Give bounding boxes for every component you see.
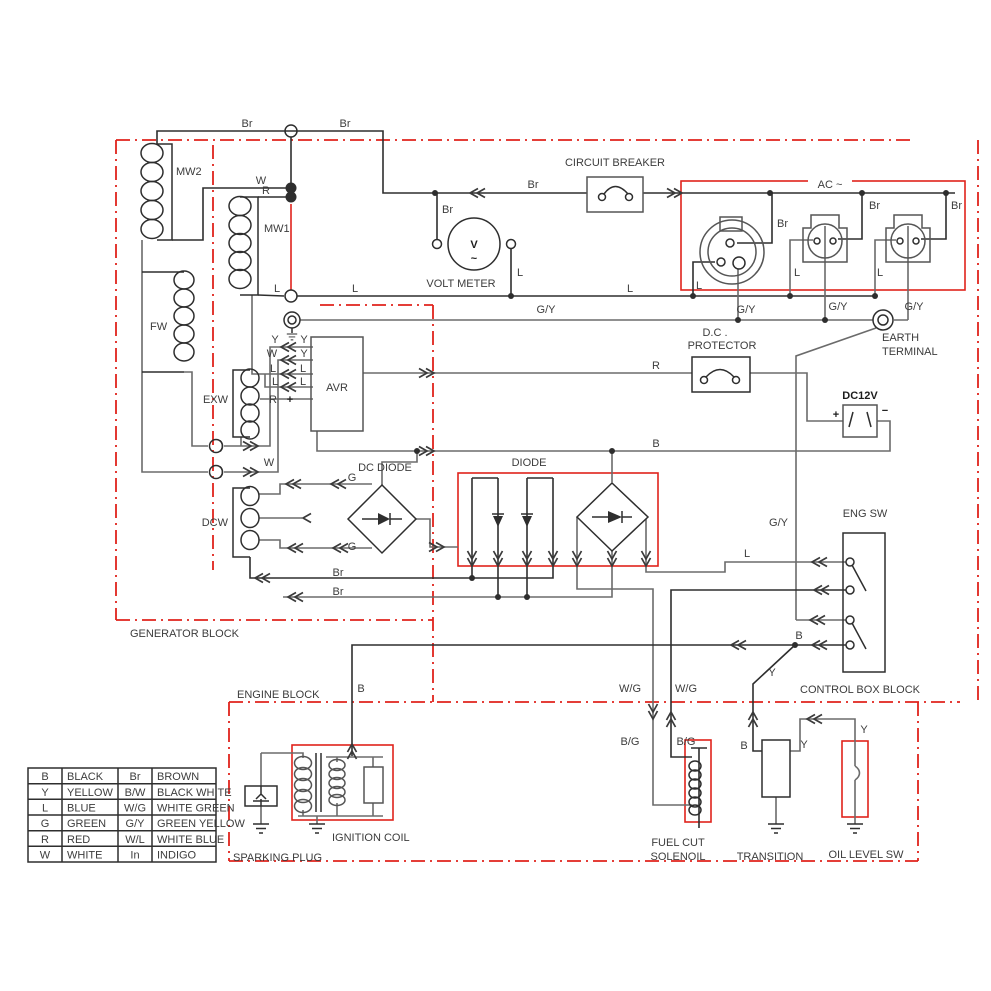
color-legend-table: BBLACK BrBROWN YYELLOW B/WBLACK WHITE LB… (28, 768, 245, 862)
wire-label: L (274, 283, 280, 295)
legend-code: L (42, 803, 48, 815)
wire-label: G/Y (769, 517, 789, 529)
exw-label: EXW (203, 394, 229, 406)
legend-code: B (41, 771, 48, 783)
wire-label: W/G (675, 683, 697, 695)
ac-label: AC ~ (818, 179, 843, 191)
wire-label: L (696, 280, 702, 292)
legend-name: YELLOW (67, 787, 113, 799)
sparking-plug-label: SPARKING PLUG (233, 852, 322, 864)
control-box-label: CONTROL BOX BLOCK (800, 684, 921, 696)
earth-terminal-label: TERMINAL (882, 346, 938, 358)
generator-earth-terminal (284, 312, 300, 340)
wire-label: G/Y (537, 304, 557, 316)
legend-name: GREEN YELLOW (157, 818, 245, 830)
wire-label: Br (442, 204, 453, 216)
wire-label: B/G (621, 736, 640, 748)
volt-meter-label: VOLT METER (426, 278, 495, 290)
eng-sw (843, 533, 885, 672)
wire-label: Br (528, 179, 539, 191)
fuel-cut-label: SOLENOIL (650, 851, 705, 863)
legend-name: GREEN (67, 818, 106, 830)
wire-label: Br (333, 586, 344, 598)
earth-terminal (873, 310, 893, 330)
dc-diode-bridge (348, 485, 416, 553)
wire-label: B (652, 438, 659, 450)
fw-label: FW (150, 321, 168, 333)
legend-name: RED (67, 834, 90, 846)
legend-name: BLACK (67, 771, 104, 783)
plug-ground (253, 824, 269, 833)
avr-label: AVR (326, 382, 348, 394)
wiring-diagram: Br Br MW2 W R MW1 FW EXW DCW L L Br CIRC… (0, 0, 991, 991)
wire-label: L (517, 267, 523, 279)
wire-label: Y (768, 667, 776, 679)
junction-dots (285, 125, 949, 648)
diode-label: DIODE (512, 457, 547, 469)
earth-terminal-label: EARTH (882, 332, 919, 344)
wire-label: B/G (677, 736, 696, 748)
wire-label: W (267, 348, 278, 360)
region-boundaries (116, 140, 978, 861)
ignition-coil (295, 753, 384, 813)
wire-label: L (270, 363, 276, 375)
dc-protector-label: D.C . (702, 327, 727, 339)
dcw-label: DCW (202, 517, 229, 529)
wire-label: L (744, 548, 750, 560)
fuel-cut-solenoid (689, 761, 701, 815)
mw2-coil (141, 144, 172, 241)
wire-label: B (795, 630, 802, 642)
ignition-ground (309, 824, 325, 833)
wire-label: W (264, 457, 275, 469)
transition-label: TRANSITION (737, 851, 804, 863)
r-terminal-dot (286, 192, 297, 203)
wire-label: Y (271, 334, 279, 346)
legend-code: R (41, 834, 49, 846)
wire-label: B (740, 740, 747, 752)
legend-code: W/G (124, 803, 146, 815)
wire-label: G/Y (737, 304, 757, 316)
dc12v-label: DC12V (842, 390, 878, 402)
wire-label: Br (869, 200, 880, 212)
dcw-coil (233, 487, 259, 558)
legend-name: WHITE (67, 850, 102, 862)
dc-diode-label: DC DIODE (358, 462, 412, 474)
wire-label: Y (860, 724, 868, 736)
wire-label: B (357, 683, 364, 695)
mw2-label: MW2 (176, 166, 202, 178)
ignition-coil-label: IGNITION COIL (332, 832, 410, 844)
wire-label: Br (340, 118, 351, 130)
eng-sw-label: ENG SW (843, 508, 888, 520)
wire-label: Br (333, 567, 344, 579)
legend-code: Br (130, 771, 141, 783)
wire-label: + (287, 394, 293, 406)
oil-level-ground (847, 824, 863, 833)
wire-label: L (300, 376, 306, 388)
wire-label: Y (300, 334, 308, 346)
wire-label: G (348, 541, 357, 553)
dc12v-minus: − (882, 405, 888, 417)
dc-protector (692, 357, 750, 392)
circuit-breaker (587, 177, 643, 212)
wire-label: L (877, 267, 883, 279)
wires (142, 131, 955, 828)
ac-outlet-box (681, 181, 965, 290)
legend-code: G (41, 818, 50, 830)
wire-label: R (269, 394, 277, 406)
wire-label: Br (951, 200, 962, 212)
wire-label: L (300, 363, 306, 375)
components (141, 144, 930, 834)
legend-name: BROWN (157, 771, 199, 783)
legend-name: WHITE GREEN (157, 803, 235, 815)
transition-box (762, 740, 790, 797)
legend-name: BLACK WHITE (157, 787, 232, 799)
wire-label: R (652, 360, 660, 372)
mw1-label: MW1 (264, 223, 290, 235)
legend-name: BLUE (67, 803, 96, 815)
legend-code: G/Y (126, 818, 146, 830)
engine-block-label: ENGINE BLOCK (237, 689, 320, 701)
legend-code: W/L (125, 834, 145, 846)
wire-label: L (352, 283, 358, 295)
wiring-diagram-page: Br Br MW2 W R MW1 FW EXW DCW L L Br CIRC… (0, 0, 991, 991)
brush-terminals (210, 440, 223, 479)
oil-level-label: OIL LEVEL SW (829, 849, 905, 861)
wire-label: R (262, 185, 270, 197)
mw1-coil (229, 197, 258, 296)
generator-block-label: GENERATOR BLOCK (130, 628, 240, 640)
dc12v-socket (843, 405, 877, 437)
l-connector-ring (285, 290, 297, 302)
wire-label: G/Y (829, 301, 849, 313)
sparking-plug (245, 786, 277, 806)
volt-meter-tilde: ~ (471, 253, 478, 265)
exw-coil (233, 369, 259, 439)
dc12v-plus: + (833, 409, 839, 421)
transition-ground (768, 824, 784, 833)
legend-code: In (130, 850, 139, 862)
wire-label: Y (800, 739, 808, 751)
wire-label: G (348, 472, 357, 484)
wire-label: Br (777, 218, 788, 230)
legend-name: INDIGO (157, 850, 197, 862)
wire-label: L (272, 376, 278, 388)
wire-label: G/Y (905, 301, 925, 313)
wire-label: L (627, 283, 633, 295)
wire-label: L (794, 267, 800, 279)
diode-box (458, 473, 658, 566)
wire-label: Y (300, 348, 308, 360)
legend-code: Y (41, 787, 49, 799)
legend-code: B/W (125, 787, 146, 799)
fuel-cut-label: FUEL CUT (651, 837, 705, 849)
wire-label: W/G (619, 683, 641, 695)
legend-name: WHITE BLUE (157, 834, 224, 846)
oil-level-switch-contact (855, 766, 860, 780)
wire-label: Br (242, 118, 253, 130)
circuit-breaker-label: CIRCUIT BREAKER (565, 157, 665, 169)
dc-protector-label: PROTECTOR (688, 340, 757, 352)
ac-receptacle-1 (700, 217, 764, 284)
volt-meter-v: V (470, 239, 478, 251)
legend-code: W (40, 850, 51, 862)
